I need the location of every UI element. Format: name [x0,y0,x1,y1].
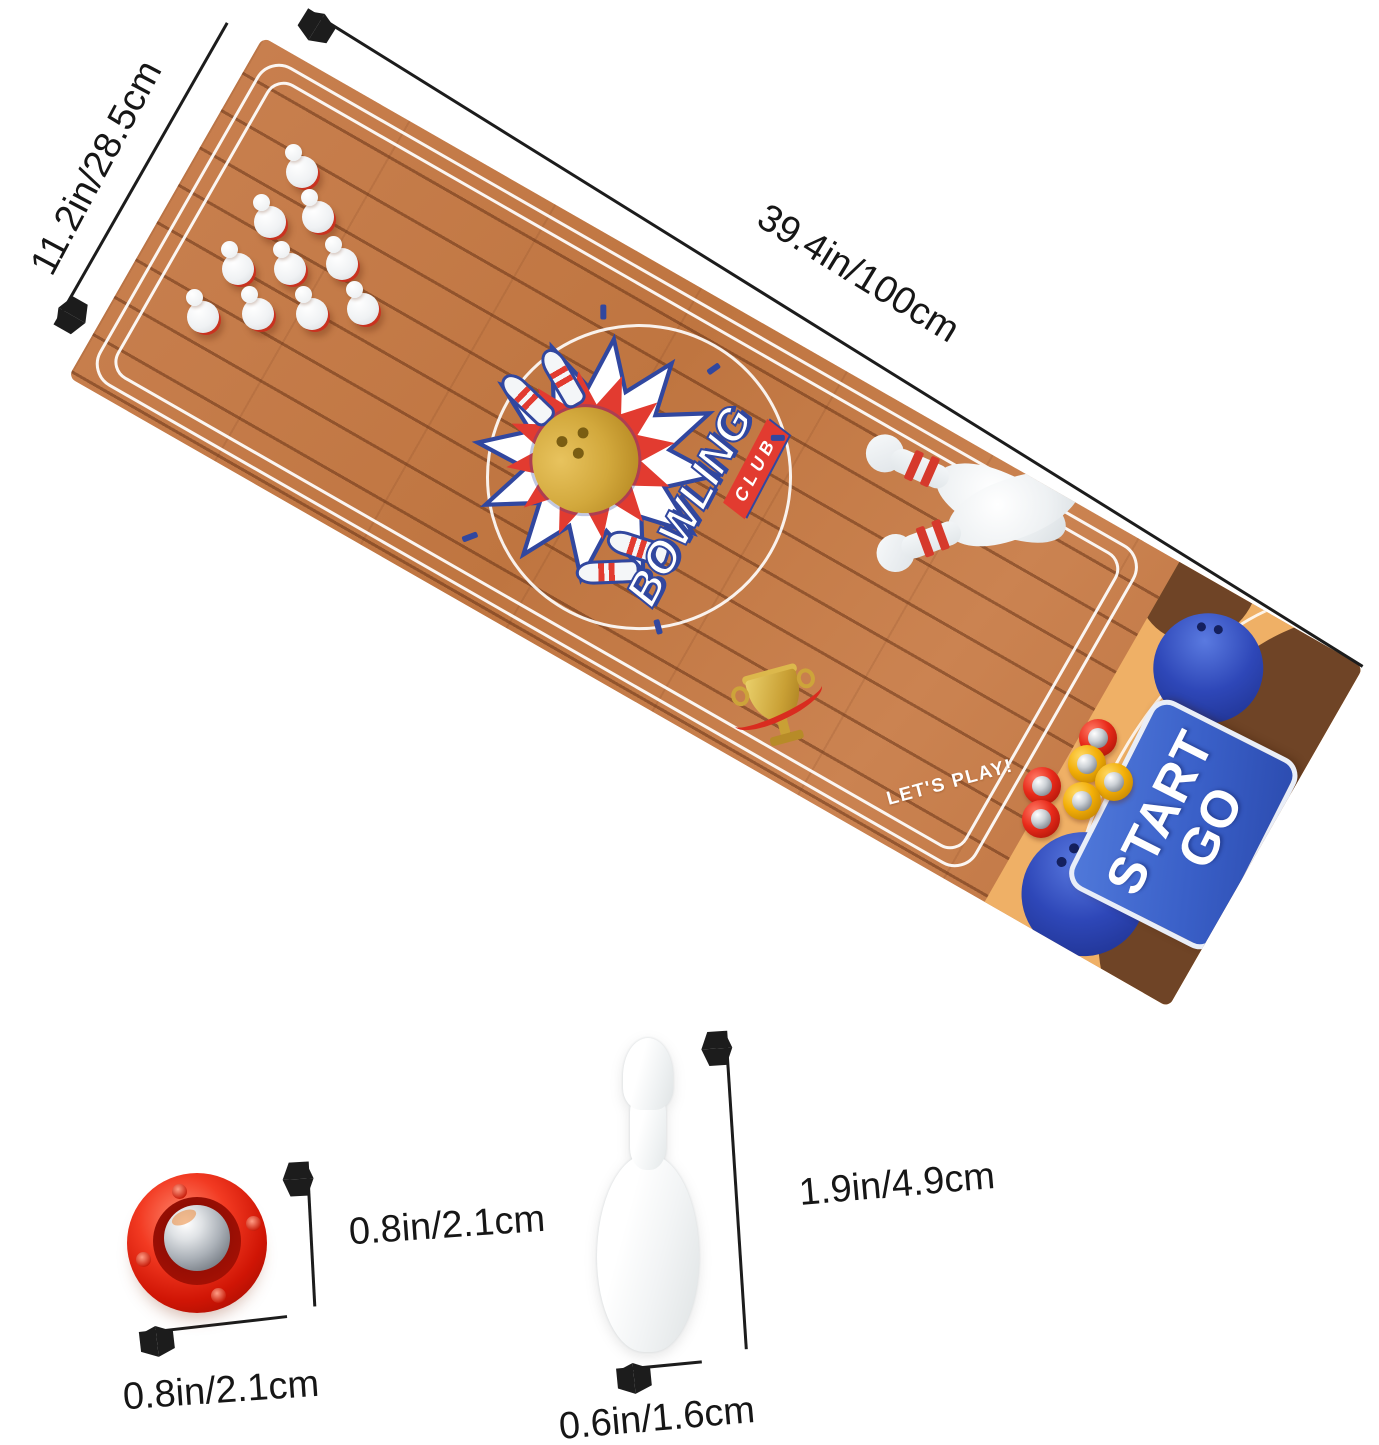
pin-diameter-arrow [616,1360,702,1371]
puck-height-arrow [306,1162,317,1307]
pin-height-arrow [724,1031,748,1350]
mini-bowling-pin [343,281,383,327]
product-annotation-image: BOWLING CLUB LET'S PLAY! [0,0,1379,1445]
logo-shard [461,531,478,542]
logo-shard [600,304,606,319]
logo-shard [706,362,721,375]
logo-shard [653,619,663,635]
pin-diameter-label: 0.6in/1.6cm [557,1389,756,1445]
yellow-puck [1063,782,1101,820]
red-puck [1022,800,1060,838]
mini-bowling-pin [270,241,310,287]
mini-bowling-pin [322,236,362,282]
mini-bowling-pin [298,189,338,235]
mini-bowling-pin [250,194,290,240]
bowling-lane-mat: BOWLING CLUB LET'S PLAY! [68,37,1363,1007]
mini-bowling-pin [292,286,332,332]
mini-bowling-pin [183,289,223,335]
puck-diameter-arrow [139,1315,287,1335]
puck-diameter-label: 0.8in/2.1cm [122,1363,321,1420]
mat-length-label: 39.4in/100cm [749,196,966,352]
puck-height-label: 0.8in/2.1cm [348,1198,547,1255]
pin-height-label: 1.9in/4.9cm [797,1155,996,1215]
mini-bowling-pin [282,144,322,190]
puck-photo [127,1173,267,1313]
mini-bowling-pin [238,286,278,332]
mini-bowling-pin [218,241,258,287]
pin-photo [594,1038,702,1352]
logo-shard [771,435,785,441]
